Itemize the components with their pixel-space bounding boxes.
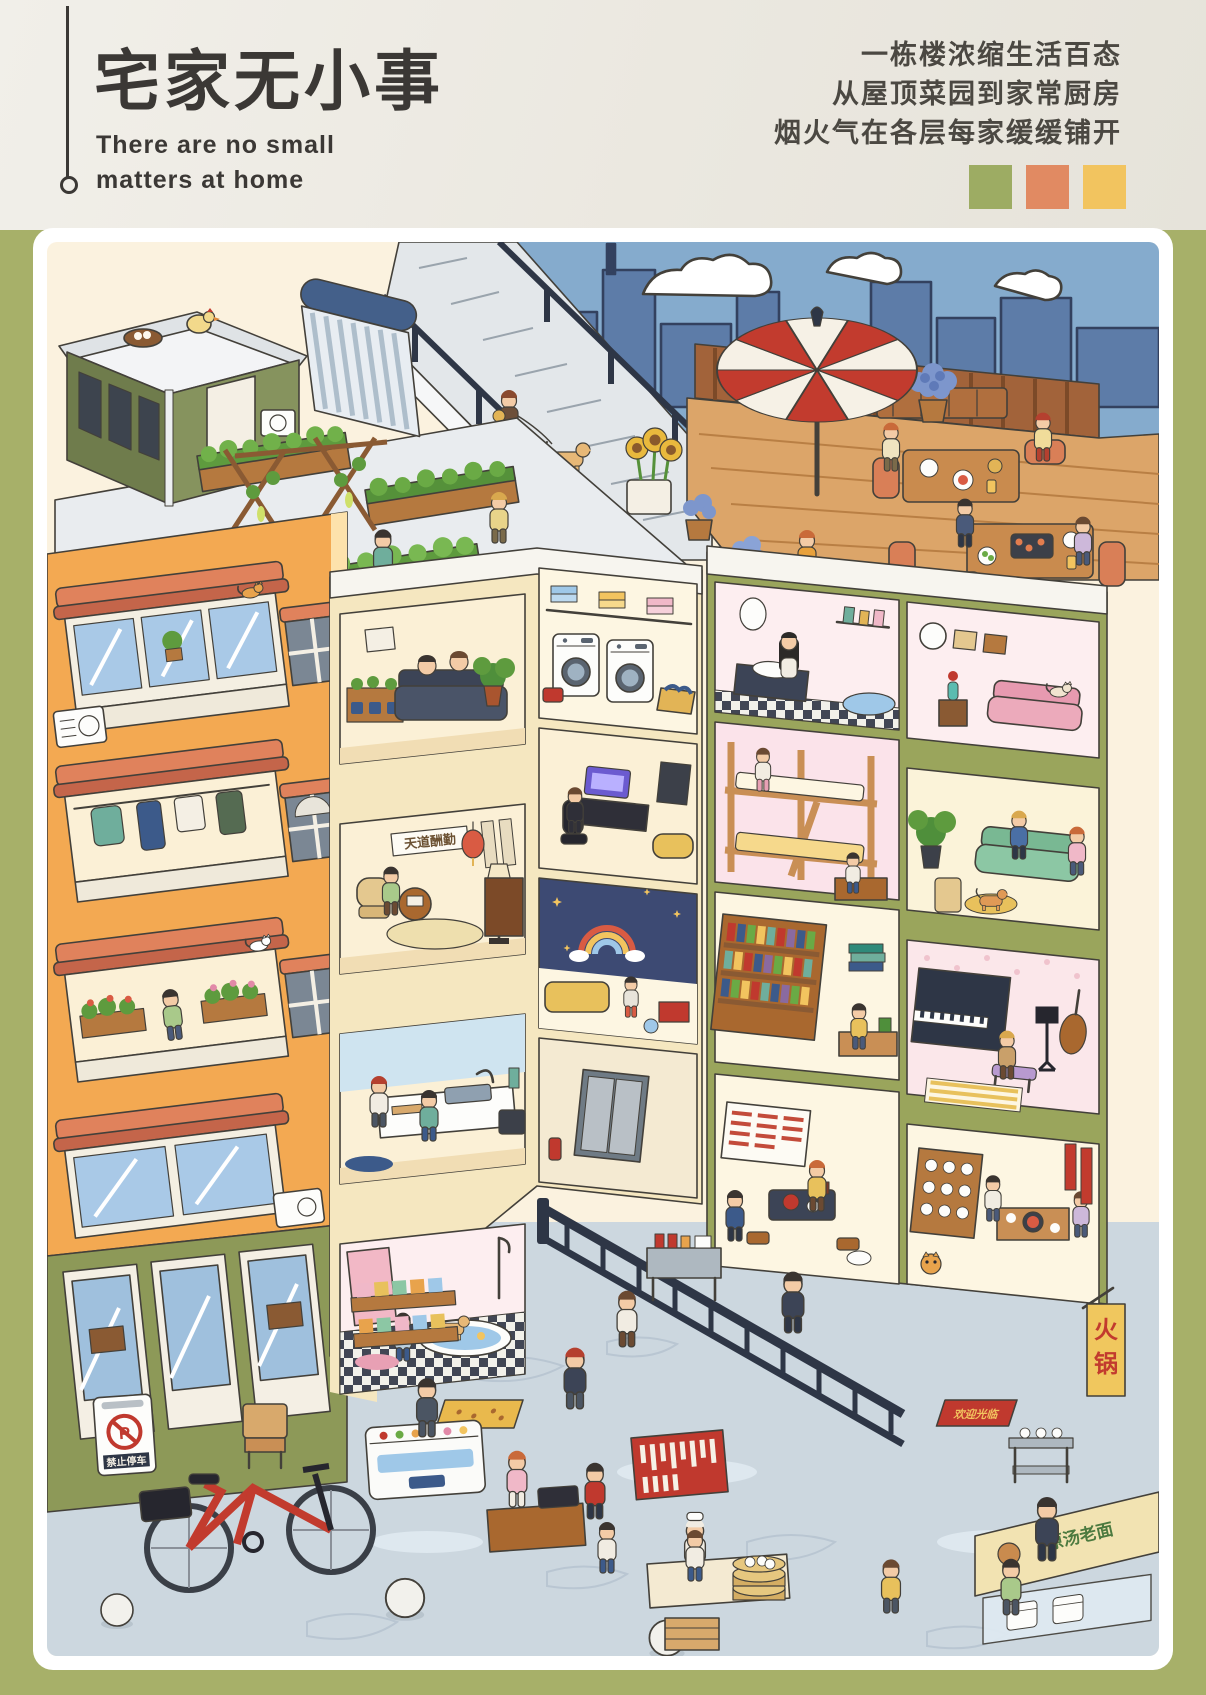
svg-text:欢迎光临: 欢迎光临 bbox=[951, 1407, 1000, 1421]
room-living bbox=[340, 594, 525, 764]
round-mirror bbox=[920, 623, 946, 649]
tagline: 一栋楼浓缩生活百态 从屋顶菜园到家常厨房 烟火气在各层每家缓缓铺开 bbox=[774, 36, 1122, 153]
balcony-3 bbox=[51, 916, 302, 1083]
room-bunk bbox=[715, 722, 899, 900]
room-eatery bbox=[715, 1074, 899, 1284]
girl-long-hair bbox=[779, 632, 799, 678]
page-title: 宅家无小事 bbox=[94, 28, 444, 124]
book-stacks bbox=[849, 944, 885, 971]
bollard-1 bbox=[101, 1594, 133, 1629]
title-accent-dot bbox=[60, 176, 78, 194]
shed-ac-unit bbox=[261, 410, 295, 436]
room-vanity-bath bbox=[715, 582, 899, 730]
room-elevator-hall bbox=[539, 1038, 697, 1198]
room-tea: 天道酬勤 bbox=[340, 804, 525, 974]
room-hotpot bbox=[907, 1124, 1099, 1304]
dining-table-2 bbox=[967, 524, 1093, 578]
ac-unit-1 bbox=[53, 706, 107, 748]
dish-rack bbox=[910, 1148, 982, 1238]
bamboo-steamers bbox=[733, 1556, 785, 1600]
room-piano bbox=[907, 940, 1099, 1114]
ground-shop bbox=[47, 1224, 347, 1512]
pos-laptop bbox=[538, 1486, 579, 1509]
welcome-mat-red: 欢迎光临 bbox=[937, 1400, 1017, 1426]
bath-rug bbox=[355, 1354, 399, 1370]
room-kids bbox=[539, 878, 697, 1044]
no-parking-sign: P 禁止停车 bbox=[93, 1394, 156, 1476]
rubber-duck bbox=[477, 1332, 485, 1340]
photo-frame-1 bbox=[953, 630, 977, 650]
drain-pipe bbox=[165, 390, 173, 506]
swatch-salmon bbox=[1026, 165, 1069, 209]
bike-seat bbox=[189, 1474, 219, 1484]
small-tub bbox=[843, 693, 895, 715]
tiger-plush bbox=[921, 1252, 941, 1274]
kids-sofa bbox=[545, 982, 609, 1012]
kitchen-rug bbox=[345, 1156, 393, 1172]
wall-picture bbox=[365, 627, 395, 652]
photo-frame-2 bbox=[983, 634, 1007, 654]
color-swatches bbox=[969, 165, 1126, 209]
room-lounge bbox=[907, 602, 1099, 758]
bird-nest bbox=[124, 329, 162, 347]
ac-unit-2 bbox=[273, 1188, 325, 1228]
menu-board-red bbox=[631, 1430, 728, 1500]
tagline-line-2: 从屋顶菜园到家常厨房 bbox=[774, 75, 1122, 114]
room-gaming bbox=[539, 728, 697, 884]
tea-table bbox=[399, 888, 431, 920]
svg-text:锅: 锅 bbox=[1094, 1351, 1118, 1378]
laundry-basket bbox=[657, 686, 695, 714]
bollard-2 bbox=[386, 1579, 424, 1621]
svg-text:火: 火 bbox=[1094, 1317, 1118, 1344]
towel bbox=[509, 1068, 519, 1088]
green-sofa bbox=[974, 826, 1082, 883]
chef-hat bbox=[687, 1512, 703, 1520]
bookshelf bbox=[711, 914, 827, 1040]
stool-2 bbox=[837, 1238, 859, 1250]
bathroom-door bbox=[347, 1248, 397, 1326]
room-study bbox=[907, 768, 1099, 930]
media-shelf bbox=[657, 762, 691, 805]
hotpot-table bbox=[997, 1208, 1069, 1240]
building-scene: 天道酬勤 bbox=[47, 242, 1159, 1656]
room-laundry bbox=[539, 568, 697, 734]
tagline-line-3: 烟火气在各层每家缓缓铺开 bbox=[774, 114, 1122, 153]
couplet-strip-2 bbox=[1065, 1144, 1076, 1190]
bean-sofa bbox=[653, 834, 693, 858]
couplet-strip-1 bbox=[1081, 1148, 1092, 1204]
swatch-yellow bbox=[1083, 165, 1126, 209]
desk-lamp bbox=[879, 1018, 891, 1032]
washing-machine-1 bbox=[553, 634, 599, 696]
dining-table-1 bbox=[903, 450, 1019, 502]
menu-board-white bbox=[721, 1102, 810, 1166]
hotpot-banner: 火 锅 bbox=[1083, 1288, 1125, 1396]
wooden-crate bbox=[665, 1618, 719, 1650]
tagline-line-1: 一栋楼浓缩生活百态 bbox=[774, 36, 1122, 75]
upright-piano bbox=[911, 968, 1010, 1051]
swatch-green bbox=[969, 165, 1012, 209]
poster-frame: 天道酬勤 bbox=[33, 228, 1173, 1670]
rice-cooker bbox=[499, 1110, 525, 1134]
toy-ball bbox=[644, 1019, 658, 1033]
left-facade bbox=[47, 512, 350, 1512]
cat-tower bbox=[935, 878, 961, 912]
right-building: 火 锅 bbox=[707, 546, 1125, 1396]
stool bbox=[747, 1232, 769, 1244]
room-library bbox=[711, 892, 899, 1080]
tea-cabinet bbox=[485, 878, 523, 936]
round-rug bbox=[387, 919, 483, 949]
title-accent-line bbox=[66, 6, 69, 178]
washing-machine-2 bbox=[607, 640, 653, 702]
subtitle-line-2: matters at home bbox=[96, 163, 335, 198]
illustration: 天道酬勤 bbox=[47, 242, 1159, 1656]
toy-box bbox=[659, 1002, 689, 1022]
balcony-2 bbox=[51, 738, 302, 903]
poster-page: 宅家无小事 There are no small matters at home… bbox=[0, 0, 1206, 1695]
mirror bbox=[740, 598, 766, 630]
elevator bbox=[574, 1070, 649, 1162]
bike-crate bbox=[139, 1487, 192, 1522]
header: 宅家无小事 There are no small matters at home… bbox=[0, 0, 1206, 230]
fire-extinguisher bbox=[549, 1138, 561, 1160]
room-kitchen bbox=[340, 1014, 525, 1184]
page-subtitle: There are no small matters at home bbox=[96, 128, 335, 198]
subtitle-line-1: There are no small bbox=[96, 128, 335, 163]
bucket bbox=[847, 1251, 871, 1265]
step-stool bbox=[543, 688, 563, 702]
